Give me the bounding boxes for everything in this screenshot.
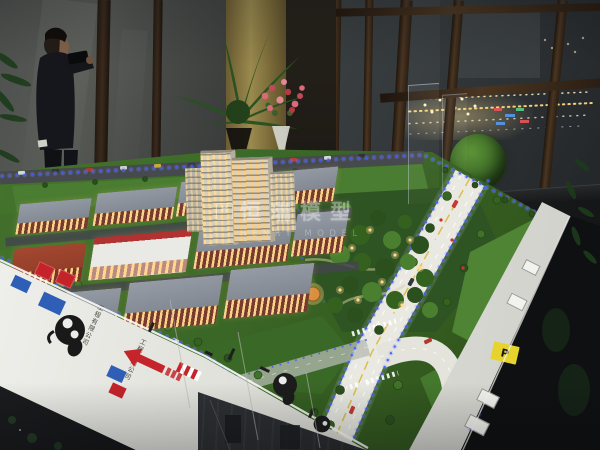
hanging-leaves [564,157,598,265]
photo-architectural-scale-model: 工程有限公司 工程有限公司 P [0,0,600,450]
right-foreground-plant [0,0,600,450]
